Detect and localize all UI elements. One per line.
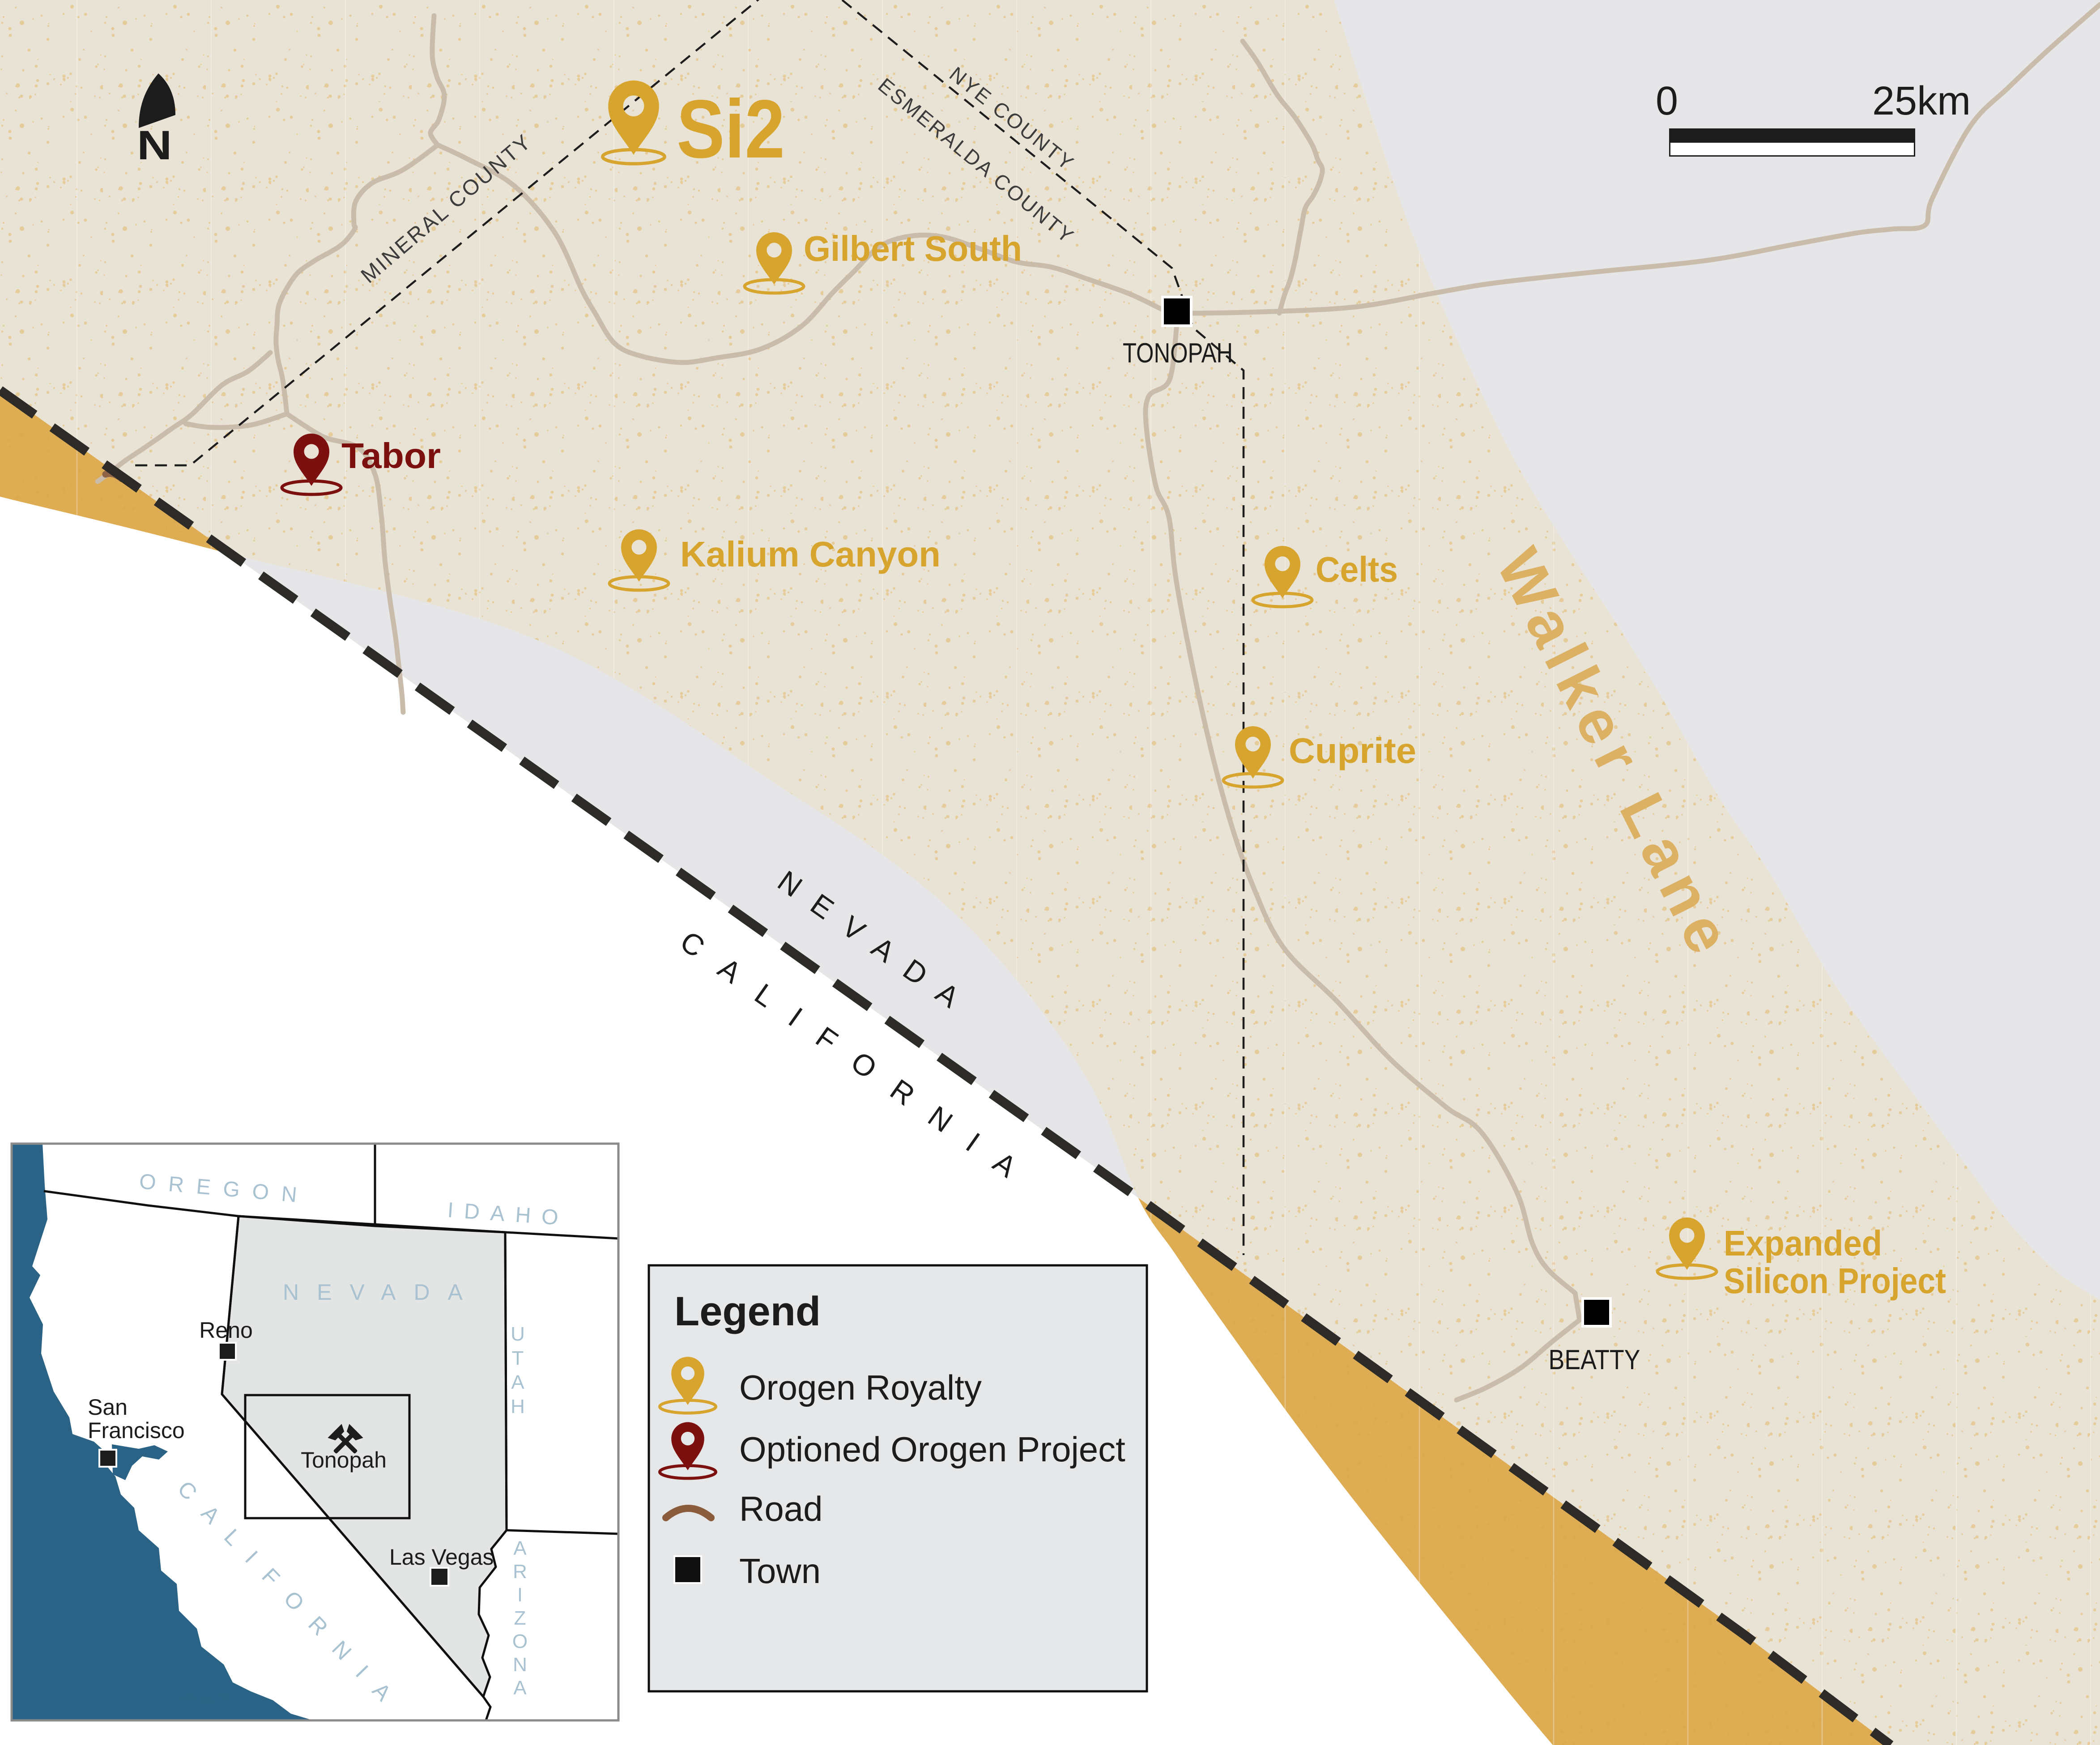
svg-text:Francisco: Francisco [88,1418,185,1443]
svg-text:Expanded: Expanded [1724,1223,1882,1263]
svg-text:N: N [513,1654,527,1676]
svg-text:A: A [511,1371,524,1393]
svg-text:TONOPAH: TONOPAH [1123,338,1233,369]
svg-text:Kalium Canyon: Kalium Canyon [680,534,941,574]
svg-text:NEVADA: NEVADA [283,1280,481,1305]
svg-text:O: O [512,1630,528,1652]
svg-text:Si2: Si2 [677,83,785,175]
svg-text:Optioned Orogen Project: Optioned Orogen Project [739,1430,1125,1469]
svg-text:Celts: Celts [1316,549,1398,589]
svg-text:Orogen Royalty: Orogen Royalty [739,1368,982,1407]
svg-text:Cuprite: Cuprite [1289,731,1416,770]
svg-text:T: T [512,1347,524,1369]
svg-text:N: N [137,123,172,168]
svg-text:A: A [513,1537,527,1559]
svg-text:Tabor: Tabor [341,436,441,476]
svg-text:Z: Z [514,1607,526,1629]
svg-text:Road: Road [739,1489,822,1528]
svg-text:Town: Town [739,1551,821,1591]
svg-text:25km: 25km [1872,79,1971,123]
svg-text:0: 0 [1656,79,1678,123]
svg-text:Gilbert South: Gilbert South [804,229,1022,268]
svg-text:Silicon Project: Silicon Project [1724,1261,1946,1301]
svg-text:A: A [513,1677,527,1699]
svg-text:San: San [88,1395,128,1420]
svg-text:Legend: Legend [674,1289,821,1334]
svg-text:U: U [511,1323,525,1345]
svg-text:BEATTY: BEATTY [1549,1345,1640,1375]
svg-text:H: H [511,1396,525,1417]
svg-text:I: I [517,1584,523,1606]
svg-text:Reno: Reno [199,1318,253,1343]
svg-text:R: R [513,1561,527,1583]
svg-text:Tonopah: Tonopah [301,1447,387,1473]
svg-text:Las Vegas: Las Vegas [389,1545,494,1570]
